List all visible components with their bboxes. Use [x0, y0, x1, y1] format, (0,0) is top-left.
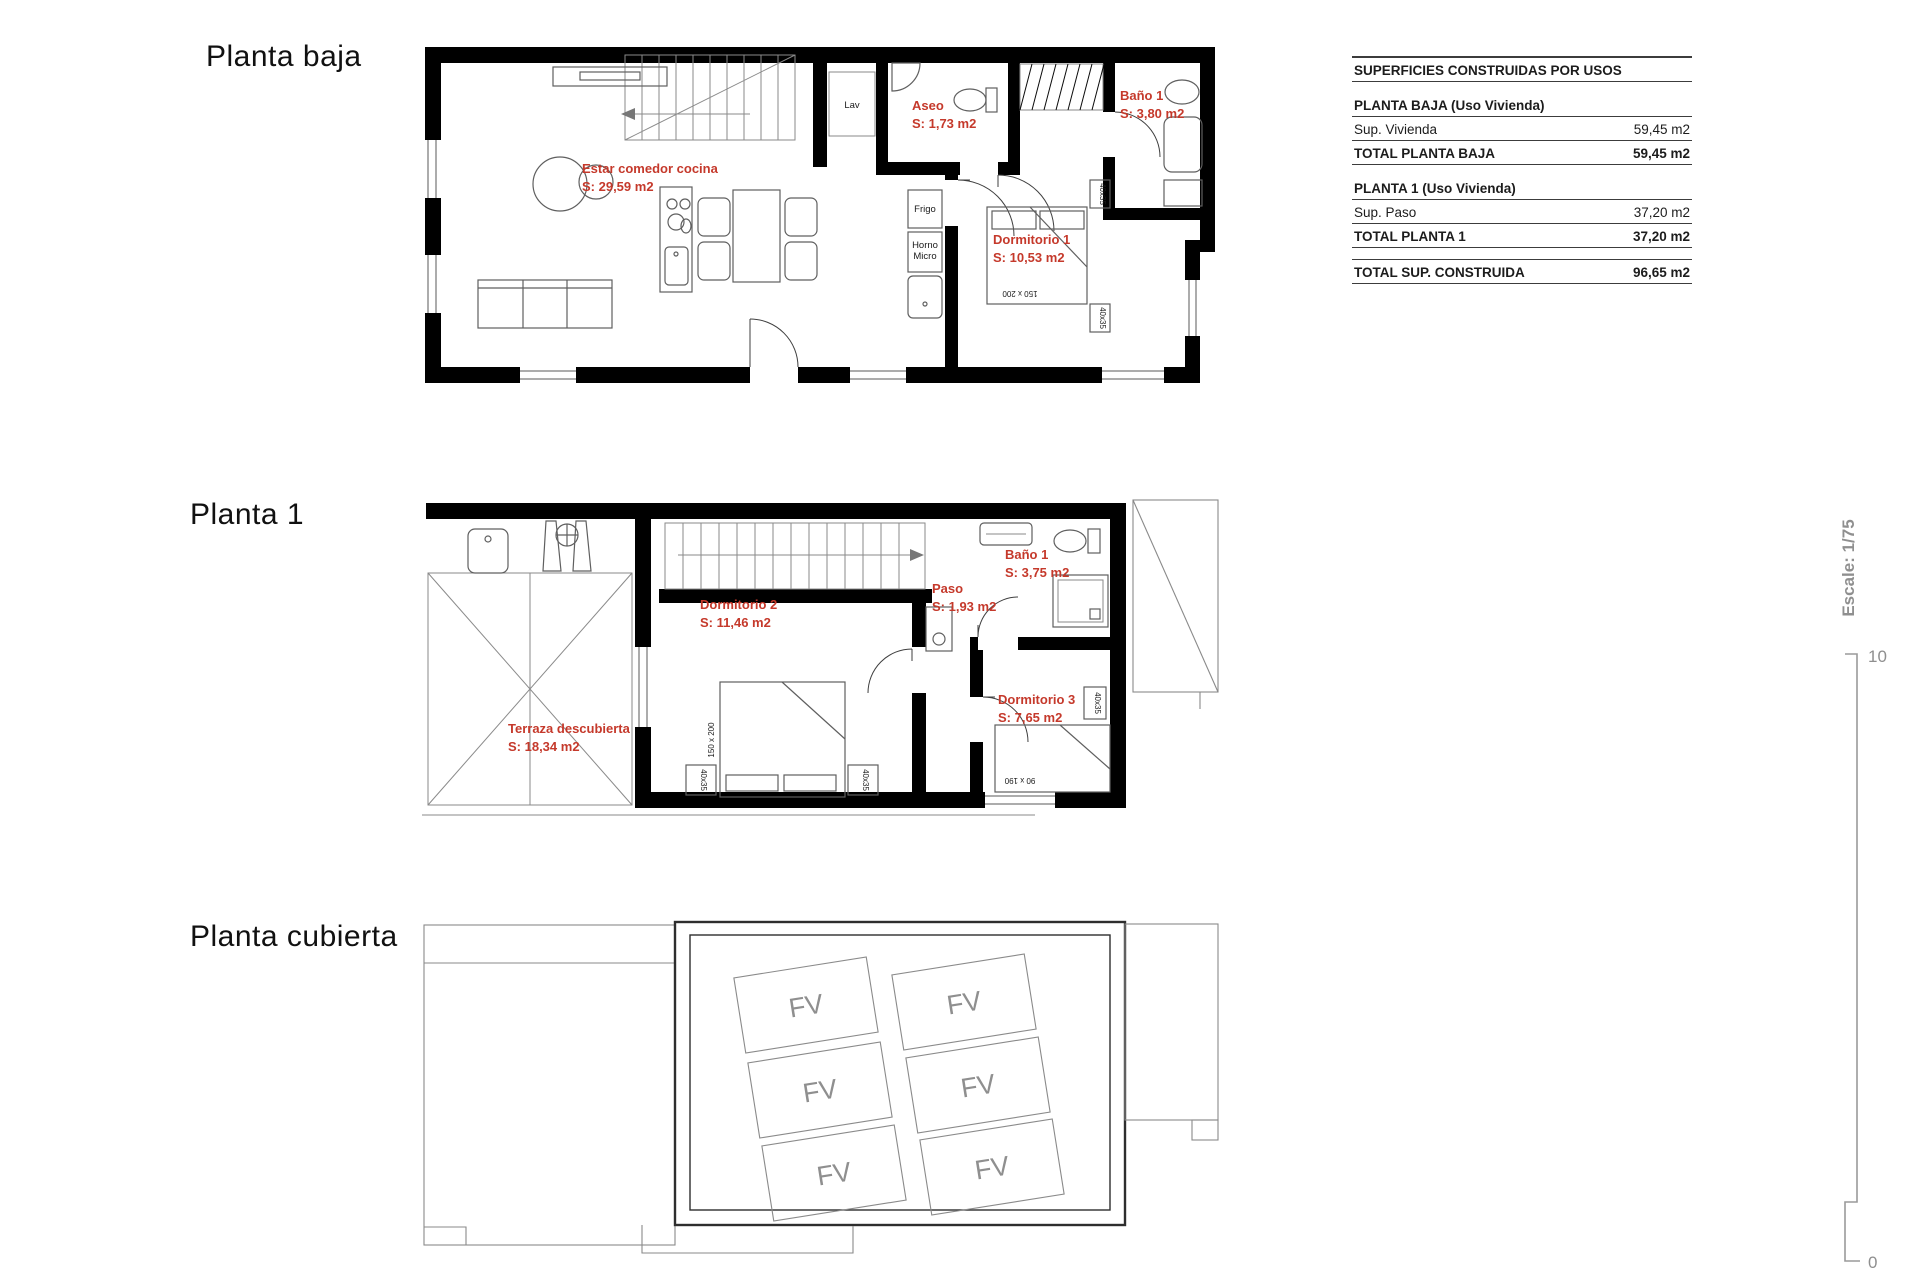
pv-panel: FV: [734, 957, 878, 1053]
pv-panel: FV: [748, 1042, 892, 1138]
lav-label: Lav: [844, 100, 860, 111]
bed-dimension: 150 x 200: [707, 722, 716, 758]
nightstand-dimension: 40x35: [1098, 183, 1107, 205]
row-label: TOTAL PLANTA 1: [1354, 229, 1466, 244]
room-label-terraza: Terraza descubierta: [508, 721, 631, 736]
pv-panel: FV: [920, 1119, 1064, 1215]
room-area-terraza: S: 18,34 m2: [508, 739, 580, 754]
title-planta-baja: Planta baja: [206, 40, 362, 74]
nightstand-dimension: 40x35: [699, 769, 708, 791]
room-area-dormitorio2: S: 11,46 m2: [700, 615, 771, 630]
pv-panel-label: FV: [801, 1073, 840, 1108]
adjacent-roof-outline: [1133, 500, 1218, 709]
table-row: TOTAL PLANTA 1 37,20 m2: [1352, 224, 1692, 248]
table-row: TOTAL PLANTA BAJA 59,45 m2: [1352, 141, 1692, 165]
pv-panel: FV: [906, 1037, 1050, 1133]
shaft-hatch: [1020, 64, 1104, 110]
areas-table-header: SUPERFICIES CONSTRUIDAS POR USOS: [1352, 56, 1692, 82]
pv-panels: FV FV FV FV FV FV: [734, 954, 1064, 1221]
room-label-bano1: Baño 1: [1120, 88, 1163, 103]
bed-dimension: 90 x 190: [1004, 776, 1035, 785]
room-area-bano1: S: 3,80 m2: [1120, 106, 1184, 121]
nightstand-dimension: 40x35: [1093, 692, 1102, 714]
row-value: 59,45 m2: [1634, 122, 1690, 137]
dining-table: [698, 190, 817, 282]
room-area-dormitorio3: S: 7,65 m2: [998, 710, 1062, 725]
row-label: Sup. Paso: [1354, 205, 1416, 220]
total-label: TOTAL SUP. CONSTRUIDA: [1354, 265, 1525, 280]
table-row: Sup. Paso 37,20 m2: [1352, 200, 1692, 224]
adjacent-roof: [1125, 924, 1218, 1140]
micro-label: Micro: [913, 251, 936, 262]
nightstand-dimension: 40x35: [861, 769, 870, 791]
nightstand-dimension: 40x35: [1098, 307, 1107, 329]
room-label-estar: Estar comedor cocina: [582, 161, 719, 176]
scale-sidebar: Escale: 1/75 10 0: [1820, 500, 1920, 1280]
fixture-labels: 150 x 200 40x35 40x35 90 x 190 40x35: [699, 692, 1102, 791]
kitchen-counter: [660, 187, 692, 292]
scale-ratio-label: Escale: 1/75: [1839, 519, 1858, 616]
scale-bottom-label: 0: [1868, 1253, 1877, 1272]
room-label-paso: Paso: [932, 581, 963, 596]
bed-dimension: 150 x 200: [1002, 289, 1038, 298]
areas-table-total-row: TOTAL SUP. CONSTRUIDA 96,65 m2: [1352, 259, 1692, 284]
section-title: PLANTA BAJA (Uso Vivienda): [1354, 98, 1545, 113]
table-row: Sup. Vivienda 59,45 m2: [1352, 117, 1692, 141]
windows: [425, 140, 1200, 383]
room-label-dormitorio3: Dormitorio 3: [998, 692, 1075, 707]
room-label-bano1: Baño 1: [1005, 547, 1048, 562]
pv-panel: FV: [762, 1125, 906, 1221]
frigo-label: Frigo: [914, 204, 936, 215]
areas-table-section-pb: PLANTA BAJA (Uso Vivienda): [1352, 93, 1692, 117]
pv-panel-label: FV: [959, 1068, 998, 1103]
section-title: PLANTA 1 (Uso Vivienda): [1354, 181, 1516, 196]
row-value: 37,20 m2: [1634, 205, 1690, 220]
pv-panel-label: FV: [815, 1156, 854, 1191]
row-value: 37,20 m2: [1633, 229, 1690, 244]
room-label-aseo: Aseo: [912, 98, 944, 113]
planta-1-plan: Terraza descubierta S: 18,34 m2 Dormitor…: [420, 497, 1230, 829]
room-area-dormitorio1: S: 10,53 m2: [993, 250, 1065, 265]
planta-cubierta-plan: FV FV FV FV FV FV: [420, 915, 1240, 1267]
horno-label: Horno: [912, 240, 938, 251]
pv-panel-label: FV: [945, 985, 984, 1020]
stair-arrow: [910, 549, 924, 561]
pv-panel-label: FV: [787, 988, 826, 1023]
staircase: [665, 523, 952, 651]
terraza-roof: [424, 925, 675, 1245]
pv-panel-label: FV: [973, 1150, 1012, 1185]
row-value: 59,45 m2: [1633, 146, 1690, 161]
room-area-aseo: S: 1,73 m2: [912, 116, 976, 131]
room-label-dormitorio2: Dormitorio 2: [700, 597, 777, 612]
pv-panel: FV: [892, 954, 1036, 1050]
tv-console: [553, 67, 667, 86]
room-label-dormitorio1: Dormitorio 1: [993, 232, 1070, 247]
staircase: [621, 55, 795, 140]
total-value: 96,65 m2: [1633, 265, 1690, 280]
title-planta-cubierta: Planta cubierta: [190, 920, 398, 954]
walls: [425, 47, 1215, 383]
dormitorio1-door: [958, 180, 1014, 236]
title-planta-1: Planta 1: [190, 498, 304, 532]
terraza: [422, 521, 1035, 815]
room-labels: Terraza descubierta S: 18,34 m2 Dormitor…: [508, 547, 1075, 754]
stair-arrow: [621, 108, 635, 120]
entrance-door: [750, 319, 798, 383]
sofa: [478, 280, 612, 328]
room-area-estar: S: 29,59 m2: [582, 179, 654, 194]
scale-bar: [1845, 654, 1860, 1261]
room-area-bano1: S: 3,75 m2: [1005, 565, 1069, 580]
row-label: Sup. Vivienda: [1354, 122, 1437, 137]
areas-table-header-label: SUPERFICIES CONSTRUIDAS POR USOS: [1354, 63, 1622, 78]
scale-top-label: 10: [1868, 647, 1887, 666]
row-label: TOTAL PLANTA BAJA: [1354, 146, 1495, 161]
room-area-paso: S: 1,93 m2: [932, 599, 996, 614]
areas-table-section-p1: PLANTA 1 (Uso Vivienda): [1352, 176, 1692, 200]
planta-baja-plan: Estar comedor cocina S: 29,59 m2 Aseo S:…: [420, 42, 1220, 390]
areas-table: SUPERFICIES CONSTRUIDAS POR USOS PLANTA …: [1352, 56, 1692, 284]
